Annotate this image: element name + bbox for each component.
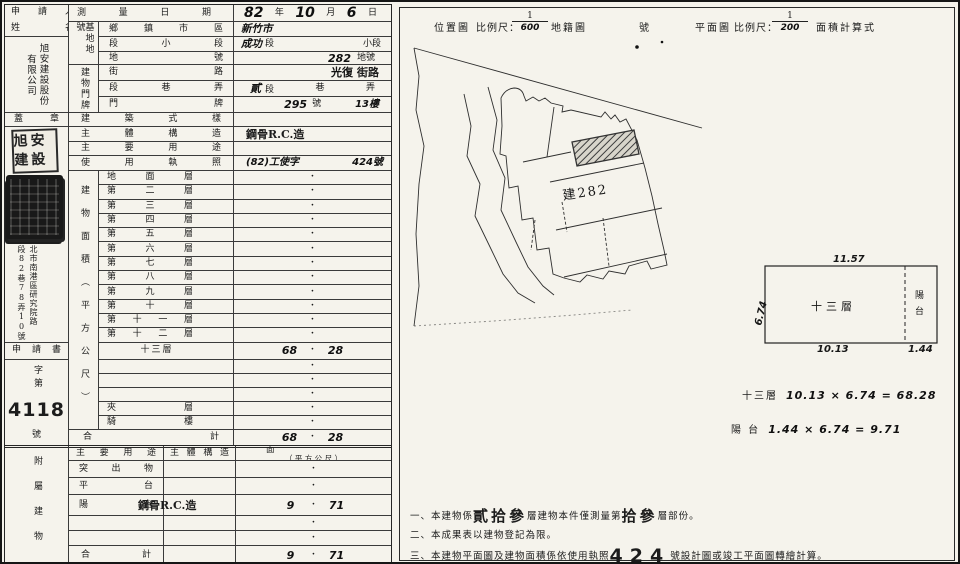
applicant-address-vertical: 段82巷78弄10號一棟 北市南港區研究院路: [17, 245, 37, 343]
floor-area-value: ·: [234, 300, 391, 314]
annex-structure-header: 主 體 構 造: [164, 446, 236, 461]
address-right-column: 北市南港區研究院路: [29, 245, 37, 343]
map-sheet-no-label: 號: [639, 19, 651, 34]
floor-area-value: ·: [234, 388, 391, 402]
building-style-label: 建 築 式 樣: [69, 113, 234, 127]
floor-area-value: ·: [234, 214, 391, 228]
main-use-value: [234, 142, 391, 156]
projection-structure: [164, 461, 236, 478]
area-calculation-title: 面積計算式: [816, 19, 876, 34]
floor-label: 第 四 層: [99, 214, 234, 228]
zi-di-label: 字第: [32, 365, 41, 391]
floor-area-value: ·: [234, 242, 391, 256]
location-map-title: 位置圖: [434, 19, 470, 34]
annex-use-header: 主 要 用 途: [69, 446, 164, 461]
mezzanine-area-value: ·: [234, 402, 391, 416]
cadastral-map-label: 地籍圖: [551, 19, 587, 34]
floor-label: 第 十 層: [99, 300, 234, 314]
company-seal-stamp: 旭安建設: [11, 128, 59, 174]
building-style-value: [234, 113, 391, 127]
annex-building-table: 附屬建物 主 要 用 途 主 體 構 造 面 積 （ 平 方 公 尺 ） 突 出…: [4, 445, 392, 564]
application-number: 4118: [8, 401, 65, 420]
arcade-label: 騎 樓: [99, 416, 234, 430]
floor-area-value: ·: [234, 228, 391, 242]
floor-plan-title: 平面圖: [695, 19, 731, 34]
room-label: 十三層: [811, 299, 856, 313]
floor-13-area-value: 68·28: [234, 343, 391, 360]
note-2: 二、本成果表以建物登記為限。: [410, 528, 950, 544]
floor-label: 第 三 層: [99, 200, 234, 214]
floor-label: 第 七 層: [99, 257, 234, 271]
application-number-block: 字第 4118 號: [5, 360, 69, 445]
ink-dot: [661, 41, 664, 44]
main-survey-table: 申 請 人 姓 名 有限公司 旭安建設股份 蓋 章 旭安建設 段82巷78弄10…: [4, 4, 392, 448]
date-day-hw: 6: [347, 6, 357, 20]
floor-label-blank: [99, 360, 234, 374]
stamped-license-no: 424: [610, 545, 671, 564]
scanned-building-survey-form: 申 請 人 姓 名 有限公司 旭安建設股份 蓋 章 旭安建設 段82巷78弄10…: [0, 0, 960, 564]
use-license-label: 使 用 執 照: [69, 156, 234, 171]
annex-blank-structure: [164, 531, 236, 546]
location-map-sketch: 建282: [404, 34, 714, 352]
floor-area-value: ·: [234, 328, 391, 342]
floor-label: 地 面 層: [99, 171, 234, 185]
note-3: 三、本建物平面圖及建物面積係依使用執照424號設計圖或竣工平面圖轉繪計算。: [410, 547, 950, 564]
annex-area-header: 面 積 （ 平 方 公 尺 ）: [236, 446, 391, 461]
total-label: 合 計: [69, 430, 234, 445]
application-form-label: 申 請 書: [5, 343, 69, 360]
lane-value: 貳段 巷 弄: [234, 81, 391, 97]
floor-plan-drawing: 11.57 6.74 十三層 陽 台 10.13 1.44: [753, 248, 953, 358]
structure-label: 主 體 構 造: [69, 127, 234, 142]
projection-label: 突 出 物: [69, 461, 164, 478]
month-unit: 月: [326, 9, 335, 18]
annex-blank-label: [69, 531, 164, 546]
main-use-label: 主 要 用 途: [69, 142, 234, 156]
day-unit: 日: [368, 9, 377, 18]
structure-value: 鋼骨R.C.造: [234, 127, 391, 142]
floor-area-value: ·: [234, 171, 391, 185]
land-number-group-label: 基地地號: [69, 22, 99, 65]
annex-group-label: 附屬建物: [5, 446, 69, 564]
projection-area: ·: [236, 461, 391, 478]
floor-label-blank: [99, 374, 234, 388]
arcade-area-value: ·: [234, 416, 391, 430]
land-no-label: 地 號: [99, 52, 234, 65]
stamped-floor-count: 貳拾參: [473, 507, 527, 525]
floor-label: 第 十 一 層: [99, 314, 234, 328]
annex-total-area: 9·71: [236, 546, 391, 564]
ink-dot: [635, 45, 639, 49]
floor-label: 第 二 層: [99, 185, 234, 199]
balcony-structure: 鋼骨R.C.造: [164, 495, 236, 516]
survey-date-value: 82 年 10 月 6 日: [234, 5, 391, 22]
dim-bottom-main: 10.13: [817, 344, 849, 355]
company-name-right-column: 旭安建設股份: [38, 43, 48, 106]
floor-area-value: ·: [234, 374, 391, 388]
survey-date-label: 測 量 日 期: [69, 5, 234, 22]
section-label: 段 小 段: [99, 37, 234, 52]
annex-total-structure: [164, 546, 236, 564]
hao-label: 號: [32, 431, 41, 440]
applicant-line1: 申 請 人: [5, 8, 69, 17]
land-no-value: 282 地號: [234, 52, 391, 65]
annex-blank-area: ·: [236, 531, 391, 546]
company-name-left-column: 有限公司: [26, 54, 36, 96]
street-value: 光復 街路: [234, 65, 391, 81]
parcel-label: 建282: [562, 182, 609, 203]
floor-label-blank: [99, 388, 234, 402]
scale-fraction-1: 1 600: [512, 11, 548, 34]
applicant-company-name: 有限公司 旭安建設股份: [5, 37, 69, 113]
date-month-hw: 10: [295, 6, 314, 20]
applicant-line2: 姓 名: [5, 24, 69, 33]
plate-value: 295 號 13樓: [234, 97, 391, 113]
scale-fraction-2: 1 200: [772, 11, 808, 34]
street-label: 街 路: [99, 65, 234, 81]
section-value: 成功 段 小段: [234, 37, 391, 52]
platform-area: ·: [236, 478, 391, 495]
annex-blank-label: [69, 516, 164, 531]
year-unit: 年: [275, 9, 284, 18]
dim-bottom-balcony: 1.44: [908, 344, 933, 355]
subject-building-hatch: [572, 130, 639, 166]
platform-structure: [164, 478, 236, 495]
district-value: 新竹市: [234, 22, 391, 37]
calc-line-floor13: 十三層10.13 × 6.74 = 68.28: [742, 384, 936, 403]
balcony-strip-char-1: 陽: [915, 290, 924, 301]
seal-area: 旭安建設 段82巷78弄10號一棟 北市南港區研究院路: [5, 127, 69, 343]
map-and-plan-panel: 位置圖 比例尺： 1 600 地籍圖 號 平面圖 比例尺： 1 200 面積計算…: [399, 7, 955, 561]
plate-label: 門 牌: [99, 97, 234, 113]
survey-notes: 一、本建物係貳拾參層建物本件僅測量第拾參層部份。 二、本成果表以建物登記為限。 …: [410, 509, 950, 564]
floor-area-value: ·: [234, 271, 391, 285]
stamped-floor-no: 拾參: [622, 507, 658, 525]
platform-label: 平 台: [69, 478, 164, 495]
note-1: 一、本建物係貳拾參層建物本件僅測量第拾參層部份。: [410, 509, 950, 525]
floor-label: 第 九 層: [99, 285, 234, 299]
calc-line-balcony: 陽 台1.44 × 6.74 = 9.71: [731, 418, 901, 437]
floor-area-value: ·: [234, 285, 391, 299]
floor-area-value: ·: [234, 314, 391, 328]
floor-13-label: 十三層: [99, 343, 234, 360]
district-label: 鄉 鎮 市 區: [99, 22, 234, 37]
applicant-name-header: 申 請 人 姓 名: [5, 5, 69, 37]
balcony-area: 9·71: [236, 495, 391, 516]
floor-area-value: ·: [234, 257, 391, 271]
lane-label: 段 巷 弄: [99, 81, 234, 97]
company-seal-dark-stamp: [6, 175, 63, 239]
floor-label: 第 十 二 層: [99, 328, 234, 342]
mezzanine-label: 夾 層: [99, 402, 234, 416]
floor-area-value: ·: [234, 200, 391, 214]
floor-area-value: ·: [234, 360, 391, 374]
floor-label: 第 五 層: [99, 228, 234, 242]
annex-blank-structure: [164, 516, 236, 531]
building-address-group-label: 建物門牌: [69, 65, 99, 113]
floor-area-value: ·: [234, 185, 391, 199]
building-area-column-label: 建物面積（平方公尺）: [69, 171, 99, 430]
dim-top: 11.57: [833, 254, 865, 265]
address-left-column: 段82巷78弄10號一棟: [17, 245, 25, 343]
annex-blank-area: ·: [236, 516, 391, 531]
annex-total-label: 合 計: [69, 546, 164, 564]
balcony-strip-char-2: 台: [915, 305, 924, 317]
seal-section-label: 蓋 章: [5, 113, 69, 127]
date-year-hw: 82: [244, 6, 263, 20]
total-area-value: 68·28: [234, 430, 391, 445]
floor-label: 第 六 層: [99, 242, 234, 256]
floor-label: 第 八 層: [99, 271, 234, 285]
use-license-value: (82)工使字 424號: [234, 156, 391, 171]
dim-left: 6.74: [753, 300, 770, 327]
